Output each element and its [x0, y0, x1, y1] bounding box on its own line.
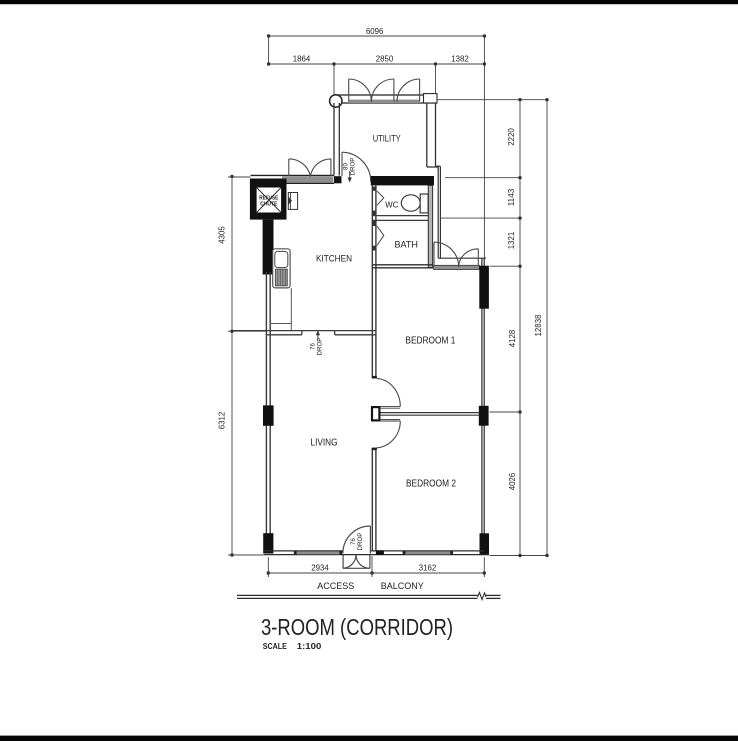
svg-text:UTILITY: UTILITY [373, 133, 402, 144]
svg-text:2850: 2850 [376, 54, 394, 64]
svg-text:6312: 6312 [217, 412, 227, 430]
svg-text:1143: 1143 [506, 188, 516, 206]
svg-text:DROP: DROP [350, 158, 357, 176]
svg-text:6096: 6096 [366, 26, 384, 36]
svg-text:3-ROOM (CORRIDOR): 3-ROOM (CORRIDOR) [261, 614, 453, 640]
svg-text:KITCHEN: KITCHEN [316, 254, 352, 265]
svg-text:LIVING: LIVING [311, 438, 338, 449]
svg-text:SCALE: SCALE [263, 642, 288, 651]
svg-text:1864: 1864 [293, 54, 311, 64]
svg-text:WC: WC [385, 200, 398, 210]
svg-text:1:100: 1:100 [297, 642, 322, 651]
svg-text:DROP: DROP [317, 338, 324, 356]
svg-text:76: 76 [310, 343, 317, 350]
svg-text:4026: 4026 [507, 473, 517, 491]
svg-text:BATH: BATH [394, 240, 418, 251]
svg-text:DROP: DROP [357, 533, 364, 551]
svg-text:ACCESS: ACCESS [317, 581, 354, 591]
svg-text:CHUTE: CHUTE [260, 201, 278, 207]
svg-text:2220: 2220 [506, 128, 516, 146]
svg-text:BEDROOM 1: BEDROOM 1 [405, 336, 455, 347]
svg-text:80: 80 [343, 163, 350, 170]
svg-text:1382: 1382 [451, 54, 469, 64]
svg-text:4128: 4128 [507, 330, 517, 348]
svg-text:1321: 1321 [506, 232, 516, 250]
svg-text:BALCONY: BALCONY [381, 581, 424, 591]
svg-text:2934: 2934 [311, 563, 329, 573]
svg-text:76: 76 [350, 538, 357, 545]
svg-text:BEDROOM 2: BEDROOM 2 [406, 479, 456, 490]
svg-text:4305: 4305 [217, 226, 227, 244]
svg-text:3162: 3162 [419, 563, 437, 573]
svg-text:12838: 12838 [533, 314, 543, 336]
